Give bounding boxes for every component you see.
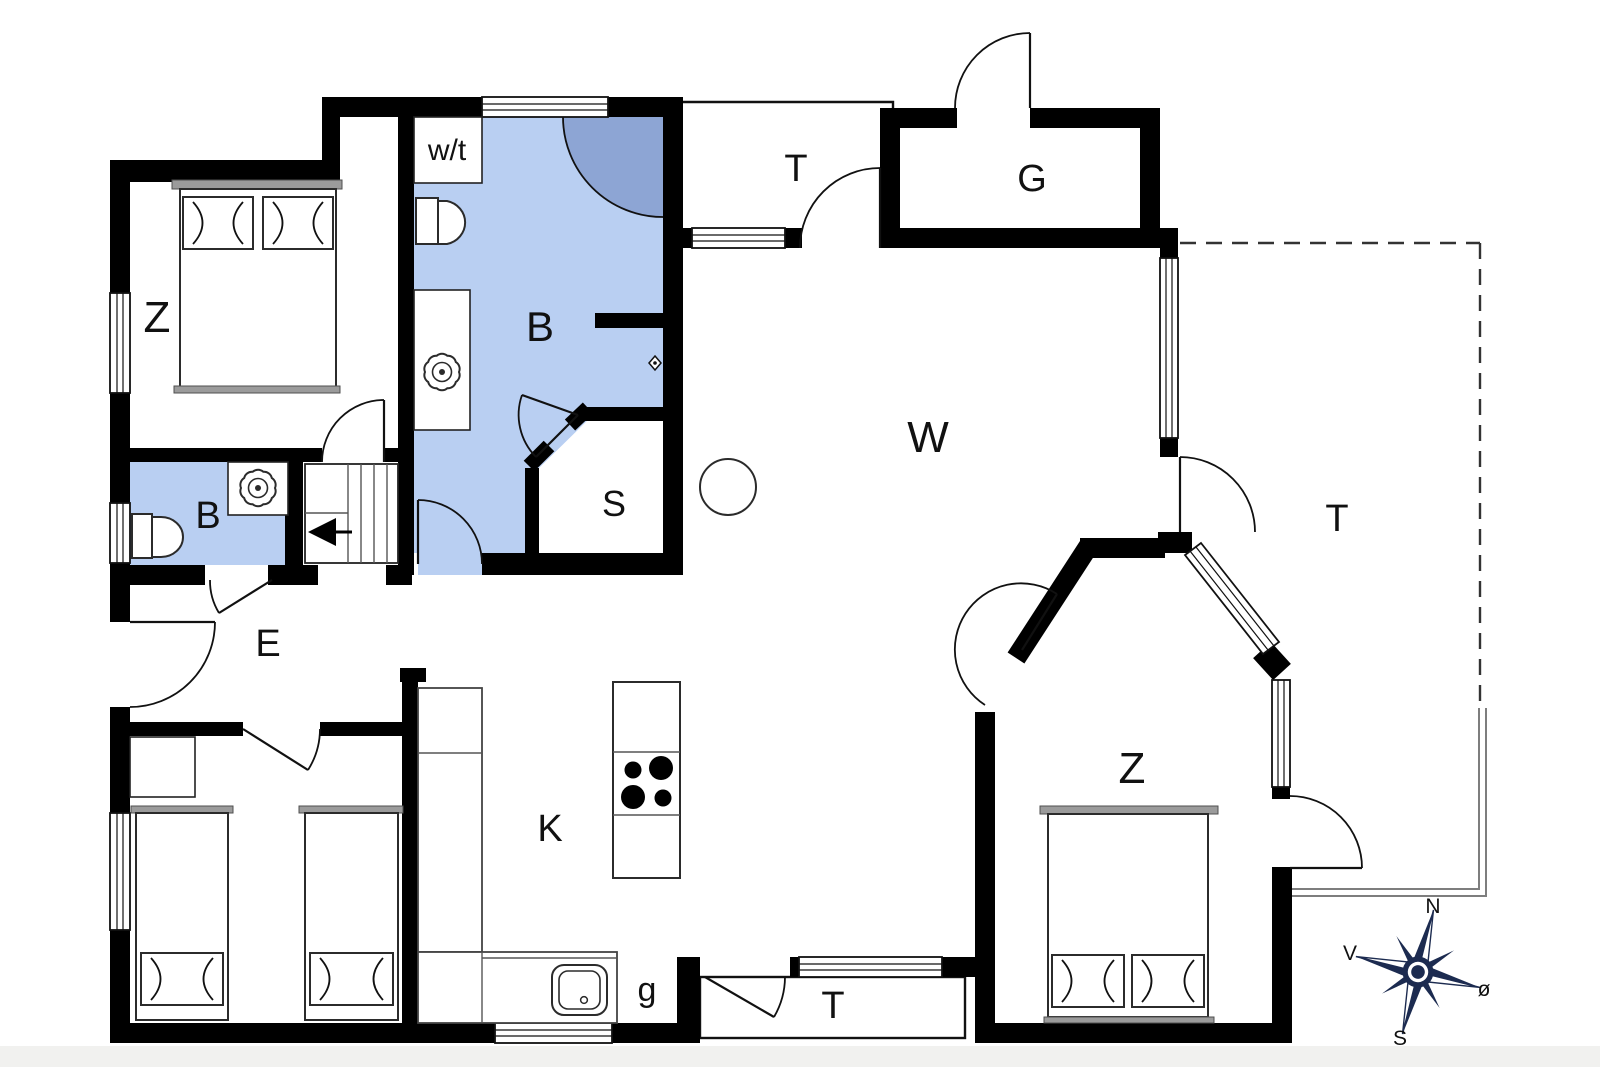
- door-bathroom-small: [210, 580, 272, 613]
- staircase: [305, 464, 398, 563]
- door-entrance: [130, 622, 215, 707]
- burner: [649, 756, 673, 780]
- label-utility: w/t: [427, 134, 467, 167]
- kitchen-counter: [418, 688, 482, 952]
- terrace-north-edge: [683, 102, 893, 110]
- wall-segment: [482, 553, 683, 575]
- sink-small-bath: [228, 462, 288, 515]
- wall-segment: [790, 957, 799, 977]
- wall-segment: [110, 160, 340, 182]
- burner: [621, 785, 645, 809]
- door-living-terrace-east: [1180, 457, 1255, 532]
- pillow: [263, 197, 333, 249]
- wall-segment: [595, 313, 683, 328]
- label-pantry: g: [638, 971, 657, 1009]
- wall-segment: [110, 565, 205, 585]
- wall-segment: [525, 468, 539, 555]
- label-living-room: W: [907, 413, 949, 462]
- terrace-east-edge-inner: [1292, 708, 1479, 889]
- window: [110, 813, 130, 930]
- pillow: [1052, 955, 1124, 1007]
- door-outbuilding: [955, 33, 1030, 108]
- wall-segment: [663, 97, 683, 575]
- bed-footboard: [174, 386, 340, 393]
- kitchen-sink-icon: [552, 965, 607, 1015]
- wall-segment: [398, 117, 414, 462]
- bed-headboard: [1040, 806, 1218, 814]
- window: [1160, 258, 1178, 438]
- wall-segment: [320, 722, 412, 736]
- window: [1272, 680, 1290, 787]
- door-terrace-north: [800, 168, 880, 248]
- burner: [625, 762, 642, 779]
- bed-headboard: [131, 806, 233, 813]
- wall-segment: [975, 1023, 1292, 1043]
- pillow: [1132, 955, 1204, 1007]
- wall-segment: [268, 565, 318, 585]
- bed-headboard: [299, 806, 403, 813]
- wall-segment: [677, 957, 700, 1043]
- wall-segment: [398, 462, 414, 575]
- label-outbuilding: G: [1017, 158, 1047, 200]
- compass-west-label: V: [1343, 942, 1357, 965]
- wall-segment: [880, 108, 957, 128]
- bathroom-main-doorway-floor: [418, 553, 482, 575]
- wall-segment: [384, 448, 412, 462]
- round-sink-icon: [424, 354, 459, 390]
- wall-segment: [1160, 228, 1178, 258]
- closet: [130, 737, 195, 797]
- label-kitchen: K: [537, 808, 562, 850]
- window: [799, 957, 942, 977]
- wall-segment: [1272, 787, 1290, 799]
- door-bedroom-nw: [322, 400, 384, 462]
- wall-segment: [880, 228, 1160, 248]
- door-kids-bedroom: [243, 729, 320, 770]
- wall-segment: [1272, 867, 1292, 1043]
- label-bedroom-se: Z: [1119, 744, 1146, 793]
- round-sink-icon: [240, 470, 275, 506]
- round-table: [700, 459, 756, 515]
- kids-bedroom-furniture: [130, 737, 403, 1020]
- wall-segment: [110, 722, 243, 736]
- wall-segment: [322, 97, 482, 117]
- label-sauna: S: [602, 483, 626, 524]
- wall-segment: [386, 565, 412, 585]
- label-bathroom-main: B: [526, 303, 554, 350]
- page-bottom-strip: [0, 1046, 1600, 1067]
- wall-segment: [942, 957, 982, 977]
- stove-island: [613, 682, 680, 878]
- label-terrace-north: T: [784, 148, 807, 190]
- label-terrace-south: T: [821, 985, 844, 1027]
- label-terrace-east: T: [1325, 498, 1348, 540]
- floorplan-canvas: Z w/t B T G W B S E T K g Z T: [0, 0, 1600, 1067]
- toilet-small-bath: [132, 514, 183, 558]
- wall-segment: [110, 1023, 495, 1043]
- wall-segment: [110, 448, 322, 462]
- wall-segment: [1140, 108, 1160, 248]
- label-entrance: E: [255, 623, 280, 665]
- vanity-main-bath: [414, 290, 470, 430]
- window: [110, 503, 130, 563]
- window: [495, 1023, 612, 1043]
- wall-segment: [683, 228, 692, 248]
- floorplan-page: Z w/t B T G W B S E T K g Z T: [0, 0, 1600, 1067]
- burner: [655, 790, 672, 807]
- compass-rose: N V ø S: [1340, 894, 1495, 1050]
- wall-segment: [612, 1023, 677, 1043]
- window: [110, 293, 130, 393]
- bed-headboard: [172, 180, 342, 189]
- bed-footboard: [1044, 1017, 1214, 1023]
- window-diagonal: [1185, 543, 1279, 654]
- double-bed-nw: [172, 180, 342, 393]
- window: [482, 97, 608, 117]
- door-bedroom-se-terrace: [1290, 796, 1362, 868]
- label-bedroom-nw: Z: [144, 293, 171, 342]
- label-bathroom-small: B: [195, 495, 220, 537]
- window: [692, 228, 785, 248]
- wall-segment: [880, 108, 900, 248]
- pillow: [183, 197, 253, 249]
- wall-segment: [585, 407, 683, 421]
- compass-east-label: ø: [1478, 978, 1491, 1001]
- double-bed-se: [1040, 806, 1218, 1023]
- compass-north-label: N: [1425, 895, 1440, 918]
- wall-segment: [1160, 438, 1178, 457]
